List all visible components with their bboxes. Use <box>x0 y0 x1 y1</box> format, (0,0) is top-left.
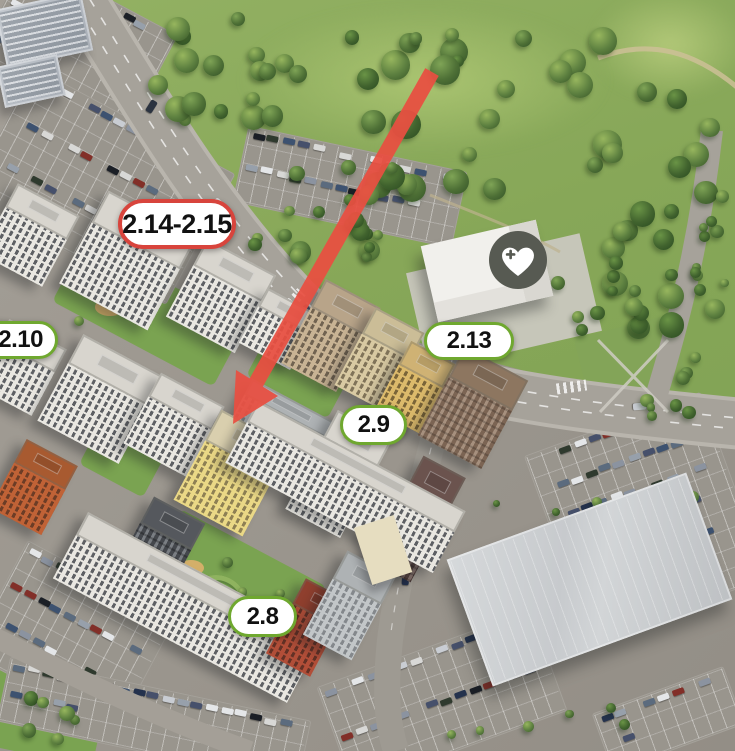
tree-grove <box>440 700 720 740</box>
label-text: 2.9 <box>358 411 390 439</box>
tree-grove <box>628 330 713 435</box>
building-label-2.10[interactable]: 2.10 <box>0 321 58 359</box>
building-label-2.14-2.15[interactable]: 2.14-2.15 <box>118 199 236 249</box>
health-clinic-marker[interactable] <box>489 231 547 289</box>
label-text: 2.14-2.15 <box>122 209 232 240</box>
building-label-2.13[interactable]: 2.13 <box>424 322 514 360</box>
label-text: 2.10 <box>0 326 43 354</box>
building-label-2.9[interactable]: 2.9 <box>340 405 407 445</box>
aerial-masterplan-render: 2.14-2.15 2.10 2.13 2.9 2.8 <box>0 0 735 751</box>
label-text: 2.13 <box>447 327 492 355</box>
building-label-2.8[interactable]: 2.8 <box>228 596 297 637</box>
tree-grove <box>545 245 660 340</box>
tree-grove <box>135 10 315 140</box>
tree-grove <box>5 688 90 748</box>
label-text: 2.8 <box>247 603 279 631</box>
tree-grove <box>690 140 730 360</box>
